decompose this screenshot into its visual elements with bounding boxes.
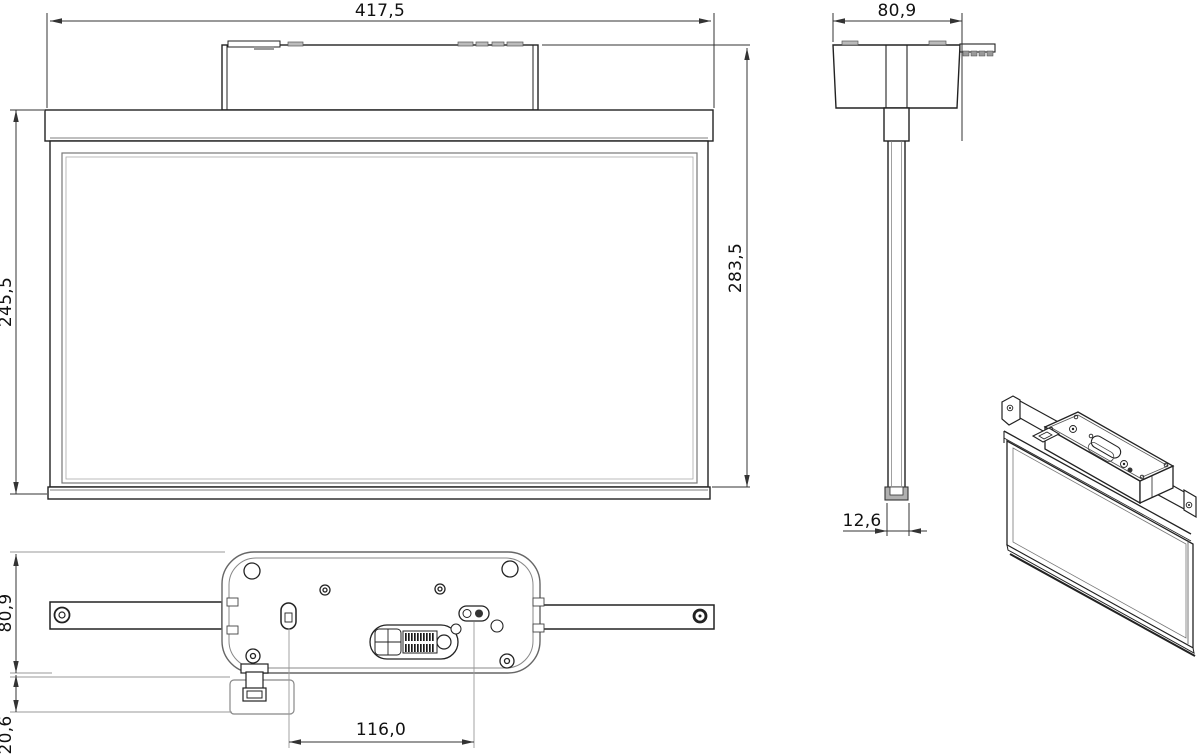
dimensional-drawing: 417,5 245,5 283,5 (0, 0, 1200, 754)
dim-front-width-label: 417,5 (355, 1, 405, 21)
dimension-front-panel-height: 245,5 (0, 110, 47, 494)
dim-front-total-height-label: 283,5 (726, 243, 746, 293)
dim-side-profile-width-label: 12,6 (842, 511, 881, 531)
dim-side-width-label: 80,9 (877, 1, 916, 21)
connector-assembly (370, 624, 461, 659)
front-view: 417,5 245,5 283,5 (0, 1, 750, 499)
track-clip (960, 44, 995, 56)
bottom-view: 80,9 20,6 116,0 (0, 552, 714, 754)
dimension-side-profile-width: 12,6 (842, 503, 927, 536)
isometric-view (1002, 396, 1196, 656)
technical-drawing-sheet: 417,5 245,5 283,5 (0, 0, 1200, 754)
dim-bottom-clip-depth-label: 20,6 (0, 715, 16, 754)
dim-front-panel-height-label: 245,5 (0, 277, 16, 327)
dimension-bottom-clip-depth: 20,6 (0, 675, 232, 754)
dim-bottom-hole-spacing-label: 116,0 (356, 720, 406, 740)
side-view: 80,9 12,6 (833, 1, 995, 536)
dim-bottom-body-width-label: 80,9 (0, 593, 16, 632)
